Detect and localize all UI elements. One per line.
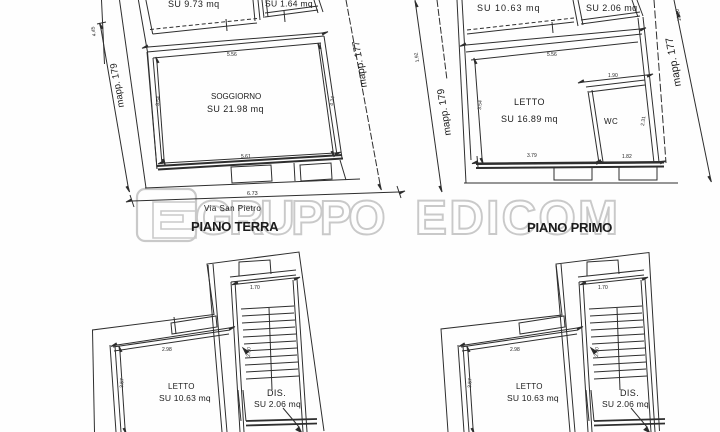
svg-text:3.54: 3.54	[155, 96, 162, 106]
svg-text:2.60: 2.60	[594, 347, 601, 357]
svg-text:SU 2.06 mq: SU 2.06 mq	[602, 399, 649, 409]
svg-text:PIANO TERRA: PIANO TERRA	[191, 219, 279, 234]
svg-text:Via San Pietro: Via San Pietro	[204, 204, 261, 213]
svg-text:2.98: 2.98	[510, 347, 520, 353]
svg-text:SU 10.63 mq: SU 10.63 mq	[477, 3, 541, 13]
svg-text:2.60: 2.60	[246, 347, 253, 357]
svg-text:2.98: 2.98	[162, 347, 172, 353]
svg-text:SU 10.63 mq: SU 10.63 mq	[159, 393, 211, 403]
svg-text:WC: WC	[604, 117, 618, 126]
svg-text:6.73: 6.73	[247, 191, 258, 197]
svg-text:SU 10.63 mq: SU 10.63 mq	[507, 393, 559, 403]
svg-text:1.90: 1.90	[608, 73, 618, 79]
svg-text:1.82: 1.82	[622, 154, 632, 160]
svg-text:5.61: 5.61	[241, 154, 251, 160]
svg-text:1.70: 1.70	[598, 285, 608, 291]
svg-text:EDICOM: EDICOM	[415, 192, 620, 245]
svg-text:3.57: 3.57	[119, 378, 126, 388]
svg-text:3.57: 3.57	[467, 378, 474, 388]
svg-text:DIS.: DIS.	[620, 388, 639, 398]
svg-text:SOGGIORNO: SOGGIORNO	[211, 92, 261, 101]
svg-text:SU 2.06 mq: SU 2.06 mq	[586, 3, 638, 13]
svg-text:SU 9.73 mq: SU 9.73 mq	[168, 0, 220, 9]
svg-text:3.54: 3.54	[477, 100, 484, 110]
svg-text:SU 16.89 mq: SU 16.89 mq	[501, 114, 558, 124]
svg-text:DIS.: DIS.	[267, 388, 286, 398]
svg-text:LETTO: LETTO	[514, 97, 545, 107]
svg-text:LETTO: LETTO	[516, 382, 543, 391]
svg-text:SU 1.64 mq: SU 1.64 mq	[265, 0, 313, 9]
svg-text:LETTO: LETTO	[168, 382, 195, 391]
svg-text:5.56: 5.56	[547, 52, 557, 58]
svg-text:PIANO PRIMO: PIANO PRIMO	[527, 220, 612, 235]
svg-text:SU 21.98 mq: SU 21.98 mq	[207, 104, 264, 114]
svg-text:3.79: 3.79	[527, 153, 537, 159]
svg-text:SU 2.06 mq: SU 2.06 mq	[254, 399, 301, 409]
svg-text:5.56: 5.56	[227, 52, 237, 58]
svg-text:1.70: 1.70	[250, 285, 260, 291]
